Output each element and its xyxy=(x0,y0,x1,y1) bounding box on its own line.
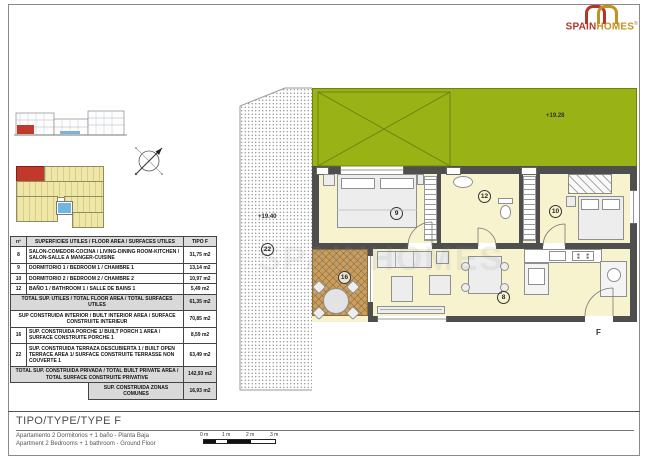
shaft xyxy=(521,167,537,175)
toilet-tank xyxy=(498,198,513,204)
row-desc: TOTAL SUP. UTILES / TOTAL FLOOR AREA / T… xyxy=(11,294,184,311)
row-desc: SUP. CONSTRUIDA PORCHE 1/ BUILT PORCH 1 … xyxy=(27,327,184,344)
row-value: 63,49 m2 xyxy=(184,344,217,367)
row-desc: TOTAL SUP. CONSTRUIDA PRIVADA / TOTAL BU… xyxy=(11,366,184,383)
partition-wall xyxy=(437,174,441,243)
row-value: 13,14 m2 xyxy=(184,263,217,273)
round-table xyxy=(323,288,349,314)
wardrobe xyxy=(523,176,536,241)
sink xyxy=(453,176,473,188)
row-num: 22 xyxy=(11,344,27,367)
row-desc: SUP. CONSTRUIDA TERRAZA DESCUBIERTA 1 / … xyxy=(27,344,184,367)
table-header-row: nº SUPERFICIES UTILES / FLOOR AREA / SUR… xyxy=(11,237,217,247)
scale-bar xyxy=(203,439,276,444)
level-label-terrace: +19.28 xyxy=(546,113,565,119)
type-title: TIPO/TYPE/TYPE F xyxy=(16,415,121,427)
row-desc: SUP. CONSTRUIDA ZONAS COMUNES xyxy=(89,383,184,400)
scale-label-3: 3 m xyxy=(270,432,286,438)
col-header-desc: SUPERFICIES UTILES / FLOOR AREA / SURFAC… xyxy=(27,237,184,247)
room-number-terrace: 22 xyxy=(261,243,274,256)
table-row: 16 SUP. CONSTRUIDA PORCHE 1/ BUILT PORCH… xyxy=(11,327,217,344)
table-row: 8 SALON-COMEDOR-COCINA / LIVING-DINING R… xyxy=(11,247,217,264)
row-desc: SUP CONSTRUIDA INTERIOR / BUILT INTERIOR… xyxy=(11,311,184,328)
areas-table: nº SUPERFICIES UTILES / FLOOR AREA / SUR… xyxy=(10,236,217,400)
pillow xyxy=(602,199,620,210)
unit-label: F xyxy=(596,328,601,337)
kitchen-sink xyxy=(549,251,566,261)
wall xyxy=(312,166,319,249)
row-value: 31,75 m2 xyxy=(184,247,217,264)
nightstand xyxy=(323,174,335,186)
row-value: 8,59 m2 xyxy=(184,327,217,344)
row-desc: SALON-COMEDOR-COCINA / LIVING-DINING ROO… xyxy=(27,247,184,264)
entry-door-opening xyxy=(585,316,613,322)
nightstand xyxy=(566,196,576,207)
table-row: 9 DORMITORIO 1 / BEDROOM 1 / CHAMBRE 1 1… xyxy=(11,263,217,273)
cooktop xyxy=(572,251,594,261)
row-desc: DORMITORIO 2 / BEDROOM 2 / CHAMBRE 2 xyxy=(27,274,184,284)
wardrobe xyxy=(424,176,437,241)
row-value: 142,93 m2 xyxy=(184,366,217,383)
row-num: 10 xyxy=(11,274,27,284)
footer-divider xyxy=(8,411,640,412)
pillow xyxy=(581,199,599,210)
col-header-num: nº xyxy=(11,237,27,247)
table-row: 10 DORMITORIO 2 / BEDROOM 2 / CHAMBRE 2 … xyxy=(11,274,217,284)
shaft xyxy=(446,167,461,175)
room-number-bed2: 10 xyxy=(549,205,562,218)
floorplan-sheet: { "logo": {"brand_red": "SPAIN", "brand_… xyxy=(0,0,650,450)
pillow xyxy=(380,178,414,189)
coffee-table xyxy=(391,276,413,302)
row-value: 70,85 m2 xyxy=(184,311,217,328)
watermark: SPAINHOMES xyxy=(258,240,504,279)
fridge-circle xyxy=(607,268,621,282)
description-line-2: Apartment 2 Bedrooms + 1 bathroom - Grou… xyxy=(16,441,156,448)
title-rule xyxy=(16,430,634,431)
brand-wordmark: SPAINHOMES® xyxy=(566,21,638,32)
scale-label-2: 2 m xyxy=(246,432,262,438)
tv-cabinet xyxy=(377,306,445,314)
col-header-type: TIPO F xyxy=(184,237,217,247)
window xyxy=(630,190,637,224)
description-line-1: Apartamento 2 Dormitorios + 1 baño - Pla… xyxy=(16,433,149,440)
partition-wall xyxy=(536,174,540,243)
room-number-bed1: 9 xyxy=(390,207,403,220)
scale-label-0: 0 m xyxy=(200,432,216,438)
highlighted-unit-elevation xyxy=(17,125,34,134)
row-value: 10,97 m2 xyxy=(184,274,217,284)
row-desc: DORMITORIO 1 / BEDROOM 1 / CHAMBRE 1 xyxy=(27,263,184,273)
brand-registered: ® xyxy=(634,21,638,27)
room-number-bath: 12 xyxy=(478,190,491,203)
garden-terrace-area xyxy=(312,88,637,168)
chair xyxy=(461,283,470,292)
table-row-comunes: SUP. CONSTRUIDA ZONAS COMUNES 16,93 m2 xyxy=(11,383,217,400)
brand-spain: SPAIN xyxy=(566,21,597,32)
window xyxy=(377,316,447,322)
brand-homes: HOMES xyxy=(596,21,634,32)
row-value: 61,35 m2 xyxy=(184,294,217,311)
row-num: 16 xyxy=(11,327,27,344)
pool-icon xyxy=(56,201,73,215)
row-num: 9 xyxy=(11,263,27,273)
table-row: 22 SUP. CONSTRUIDA TERRAZA DESCUBIERTA 1… xyxy=(11,344,217,367)
row-num: 12 xyxy=(11,284,27,294)
closet xyxy=(568,174,612,194)
row-num: 8 xyxy=(11,247,27,264)
toilet-bowl xyxy=(500,205,511,219)
row-value: 16,93 m2 xyxy=(184,383,217,400)
room-number-living: 8 xyxy=(497,291,510,304)
terrace-uncovered-area xyxy=(240,88,312,390)
table-total-row: TOTAL SUP. UTILES / TOTAL FLOOR AREA / T… xyxy=(11,294,217,311)
table-row: SUP CONSTRUIDA INTERIOR / BUILT INTERIOR… xyxy=(11,311,217,328)
nightstand xyxy=(417,174,424,185)
pillow xyxy=(341,178,375,189)
building-elevation-minimap xyxy=(14,104,129,140)
site-plan-minimap xyxy=(14,164,106,230)
room-number-porch: 16 xyxy=(338,271,351,284)
compass-north-icon xyxy=(126,138,172,184)
level-label-uncovered: +19.40 xyxy=(258,214,277,220)
oven xyxy=(528,268,545,285)
scale-label-1: 1 m xyxy=(222,432,238,438)
row-desc: BAÑO 1 / BATHROOM 1 / SALLE DE BAINS 1 xyxy=(27,284,184,294)
table-row: 12 BAÑO 1 / BATHROOM 1 / SALLE DE BAINS … xyxy=(11,284,217,294)
window xyxy=(340,166,404,174)
table-total-row: TOTAL SUP. CONSTRUIDA PRIVADA / TOTAL BU… xyxy=(11,366,217,383)
row-value: 5,49 m2 xyxy=(184,284,217,294)
